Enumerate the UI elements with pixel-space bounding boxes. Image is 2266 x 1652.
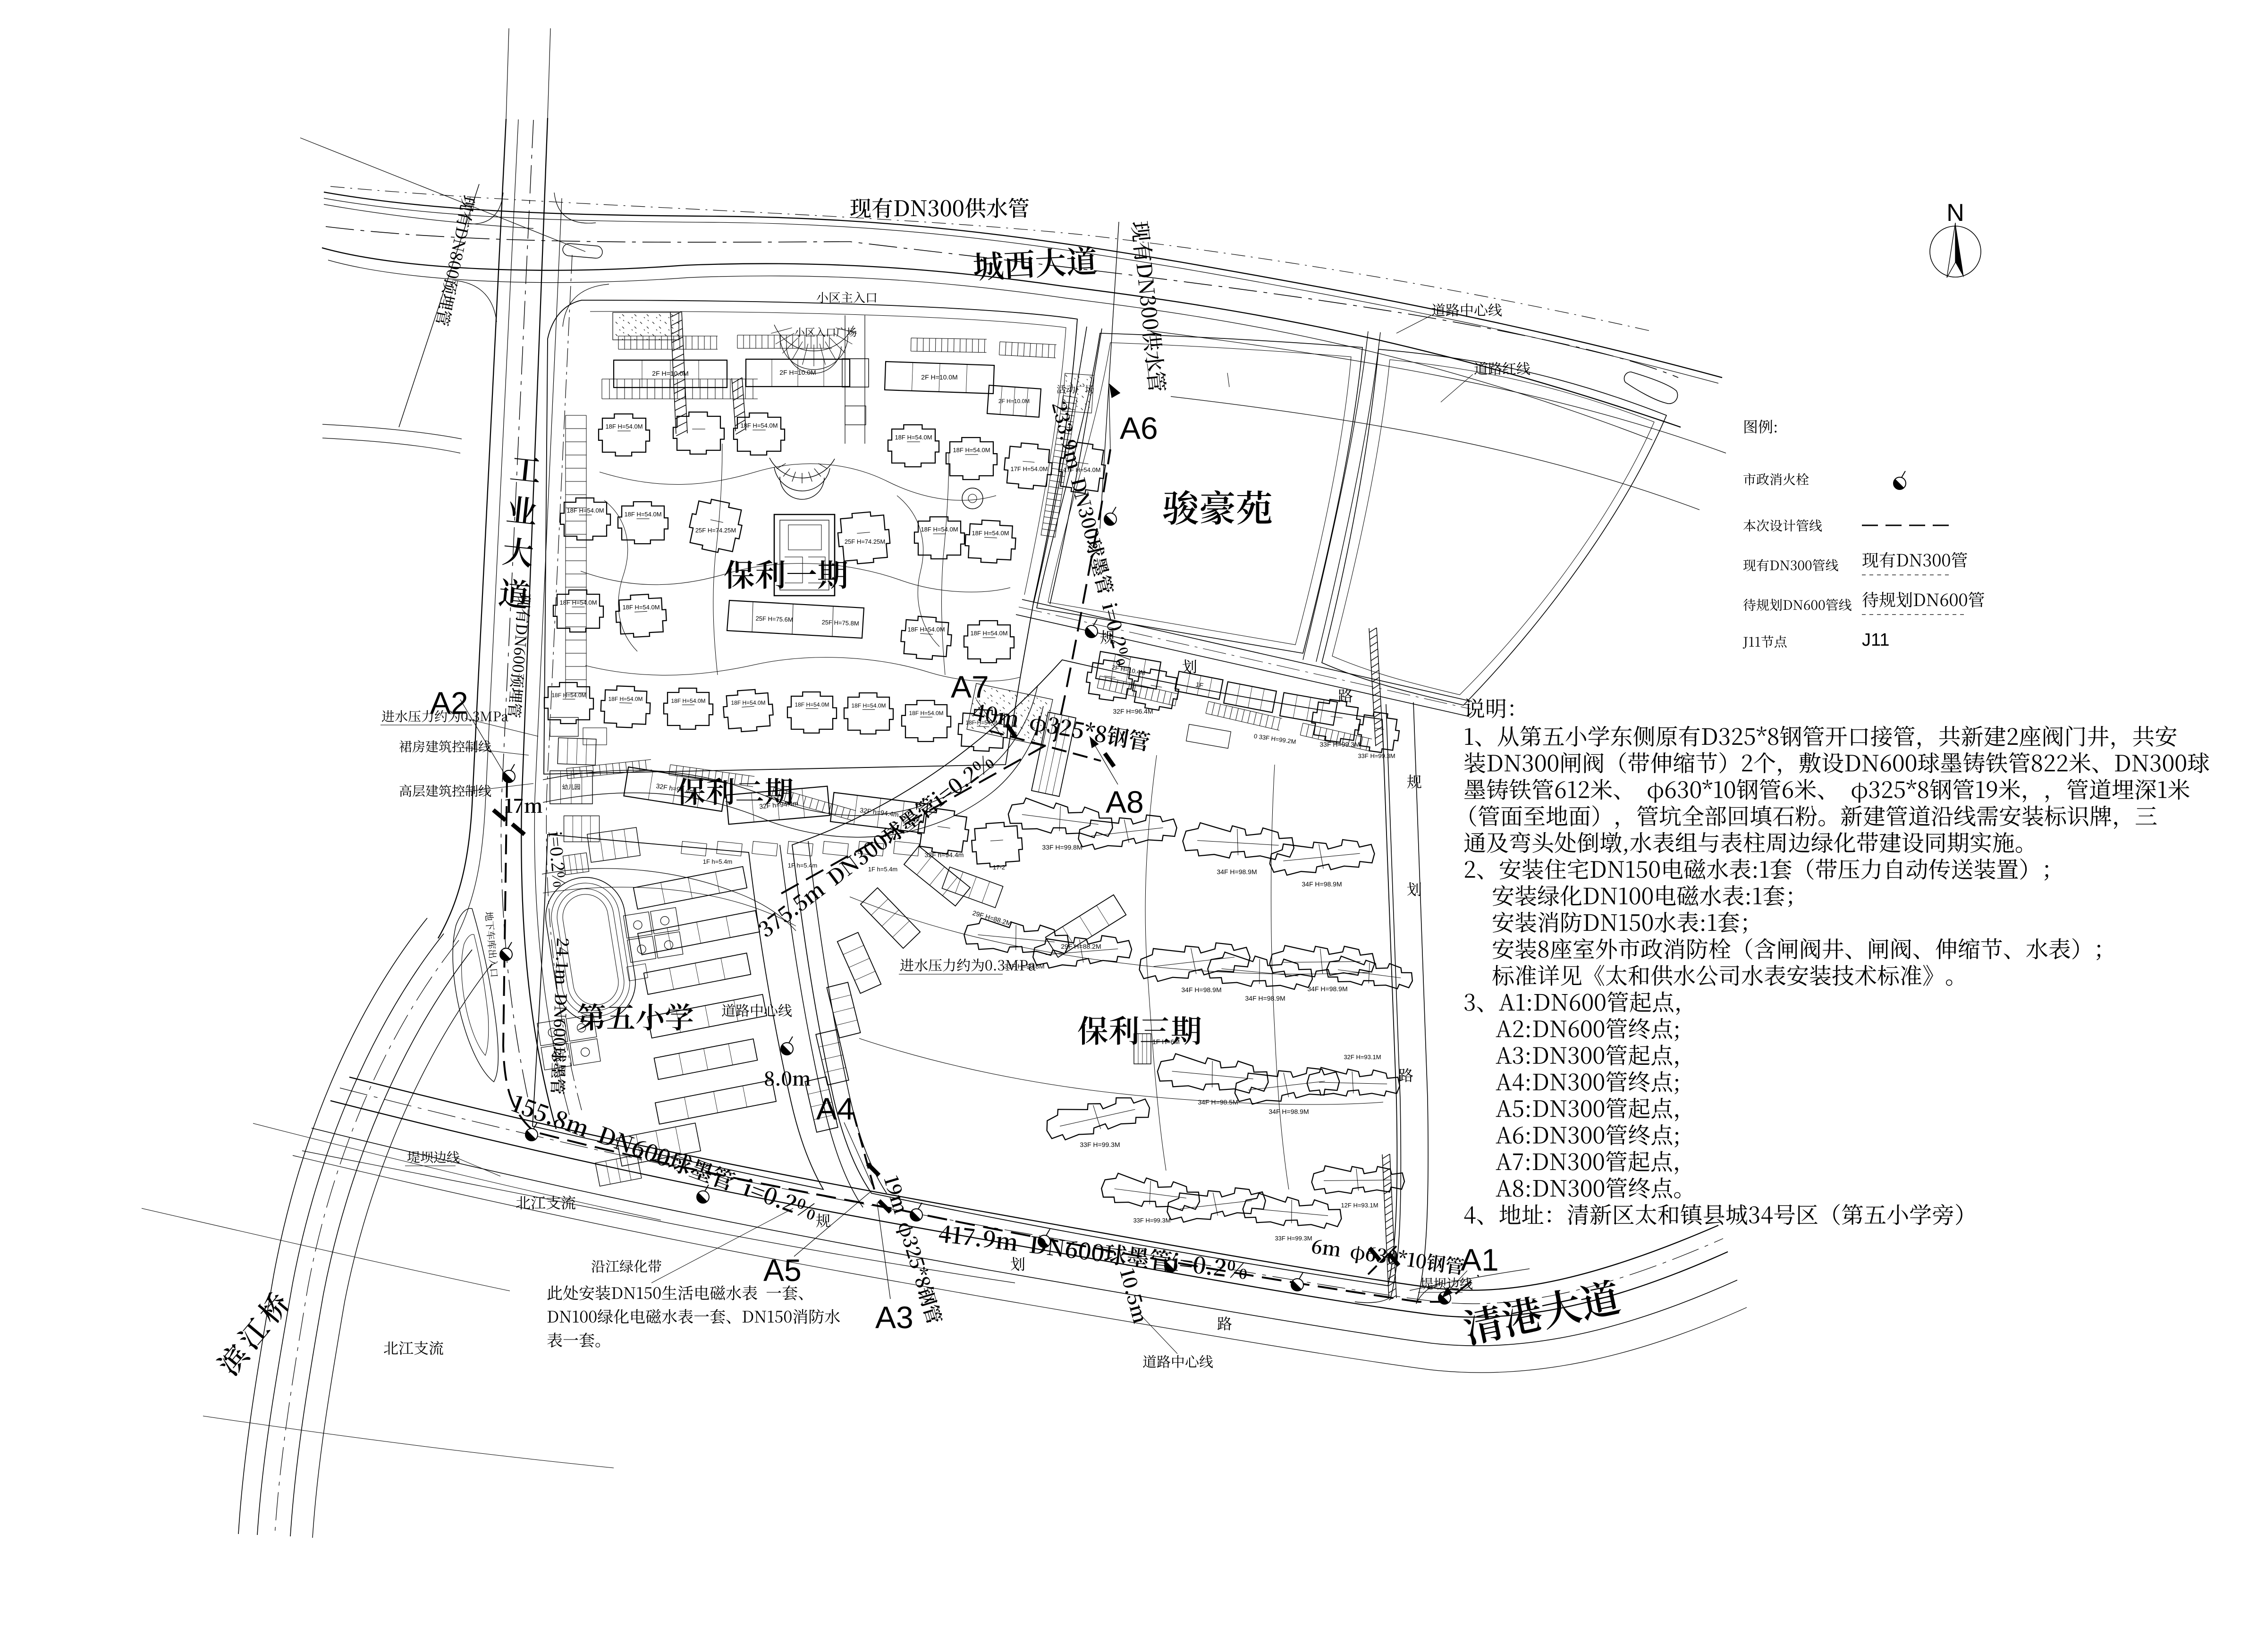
svg-text:2F H=10.0M: 2F H=10.0M: [998, 398, 1030, 405]
svg-text:32F h=94.4m: 32F h=94.4m: [925, 851, 964, 859]
svg-text:18F H=54.0M: 18F H=54.0M: [608, 696, 643, 702]
svg-text:2F H=10.0M: 2F H=10.0M: [921, 373, 957, 381]
svg-text:34F H=98.9M: 34F H=98.9M: [1217, 868, 1257, 876]
svg-text:18F H=54.0M: 18F H=54.0M: [909, 710, 943, 716]
svg-text:幼儿园: 幼儿园: [562, 784, 580, 791]
svg-text:18F H=54.0M: 18F H=54.0M: [740, 422, 778, 429]
svg-text:25F H=74.25M: 25F H=74.25M: [695, 527, 736, 534]
svg-text:1F h=5.4m: 1F h=5.4m: [703, 858, 733, 865]
svg-text:29F H=88.2M: 29F H=88.2M: [972, 909, 1012, 927]
svg-text:34F H=98.9M: 34F H=98.9M: [1302, 880, 1342, 888]
svg-text:A4: A4: [816, 1091, 854, 1126]
svg-text:18F H=54.0M: 18F H=54.0M: [895, 434, 932, 441]
svg-text:A6: A6: [1120, 411, 1158, 446]
svg-text:33F H=99.8M: 33F H=99.8M: [1042, 843, 1082, 851]
svg-text:0 33F H=99.2M: 0 33F H=99.2M: [1253, 733, 1296, 745]
svg-text:33F H=99.3M: 33F H=99.3M: [1358, 752, 1395, 759]
svg-text:18F H=54.0M: 18F H=54.0M: [671, 698, 705, 704]
svg-text:34F H=98.9M: 34F H=98.9M: [1181, 986, 1221, 994]
svg-text:18F H=54.0M: 18F H=54.0M: [731, 700, 765, 706]
svg-text:18F H=54.0M: 18F H=54.0M: [622, 604, 660, 611]
svg-text:25F H=74.25M: 25F H=74.25M: [845, 538, 885, 545]
svg-text:18F H=54.0M: 18F H=54.0M: [851, 702, 886, 709]
svg-text:34F H=98.9M: 34F H=98.9M: [1268, 1108, 1309, 1115]
svg-text:18F H=54.0M: 18F H=54.0M: [551, 692, 586, 699]
svg-text:34F H=98.9M: 34F H=98.9M: [1307, 985, 1347, 993]
svg-text:33F H=99.3M: 33F H=99.3M: [1275, 1235, 1312, 1242]
svg-text:33F H=99.3M: 33F H=99.3M: [1080, 1141, 1120, 1148]
svg-text:A8: A8: [1106, 784, 1144, 819]
svg-text:A1: A1: [1461, 1242, 1499, 1277]
svg-text:34F H=98.9M: 34F H=98.9M: [1245, 995, 1285, 1002]
svg-text:18F H=54.0M: 18F H=54.0M: [559, 599, 597, 606]
svg-text:17F H=54.0M: 17F H=54.0M: [1010, 465, 1048, 472]
svg-text:N: N: [1946, 199, 1964, 227]
svg-text:18F H=54.0M: 18F H=54.0M: [953, 447, 990, 454]
svg-text:1F h=5.4m: 1F h=5.4m: [788, 862, 818, 869]
svg-text:A5: A5: [763, 1253, 802, 1288]
svg-text:A7: A7: [951, 669, 989, 704]
svg-text:32F H=96.4M: 32F H=96.4M: [1113, 708, 1153, 715]
svg-text:25F H=75.6M: 25F H=75.6M: [755, 615, 793, 624]
svg-text:18F H=54.0M: 18F H=54.0M: [907, 626, 945, 633]
svg-text:33F H=99.3M: 33F H=99.3M: [1133, 1217, 1170, 1224]
svg-text:18F H=54.0M: 18F H=54.0M: [921, 526, 958, 533]
svg-text:34F H=98.5M: 34F H=98.5M: [1198, 1098, 1238, 1106]
svg-text:18F H=54.0M: 18F H=54.0M: [624, 511, 661, 518]
svg-text:18F H=54.0M: 18F H=54.0M: [972, 530, 1009, 537]
svg-text:18F H=54.0M: 18F H=54.0M: [795, 701, 829, 708]
svg-text:18F H=54.0M: 18F H=54.0M: [566, 507, 604, 514]
svg-text:32F h=94.4m: 32F h=94.4m: [859, 806, 899, 818]
svg-text:2F H=10.0M: 2F H=10.0M: [779, 369, 816, 376]
svg-text:18F H=54.0M: 18F H=54.0M: [970, 630, 1007, 637]
svg-text:A3: A3: [875, 1300, 913, 1335]
svg-text:1F: 1F: [1195, 681, 1204, 690]
svg-text:32F H=93.1M: 32F H=93.1M: [1344, 1054, 1381, 1061]
svg-text:2F H=10.0M: 2F H=10.0M: [652, 370, 688, 377]
svg-text:25F H=75.8M: 25F H=75.8M: [821, 619, 859, 627]
svg-text:17-2: 17-2: [993, 864, 1005, 871]
svg-text:12F H=93.1M: 12F H=93.1M: [1341, 1202, 1378, 1209]
svg-text:1F h=5.4m: 1F h=5.4m: [868, 866, 898, 873]
svg-text:J11: J11: [1862, 630, 1889, 650]
svg-text:18F H=54.0M: 18F H=54.0M: [605, 423, 643, 430]
